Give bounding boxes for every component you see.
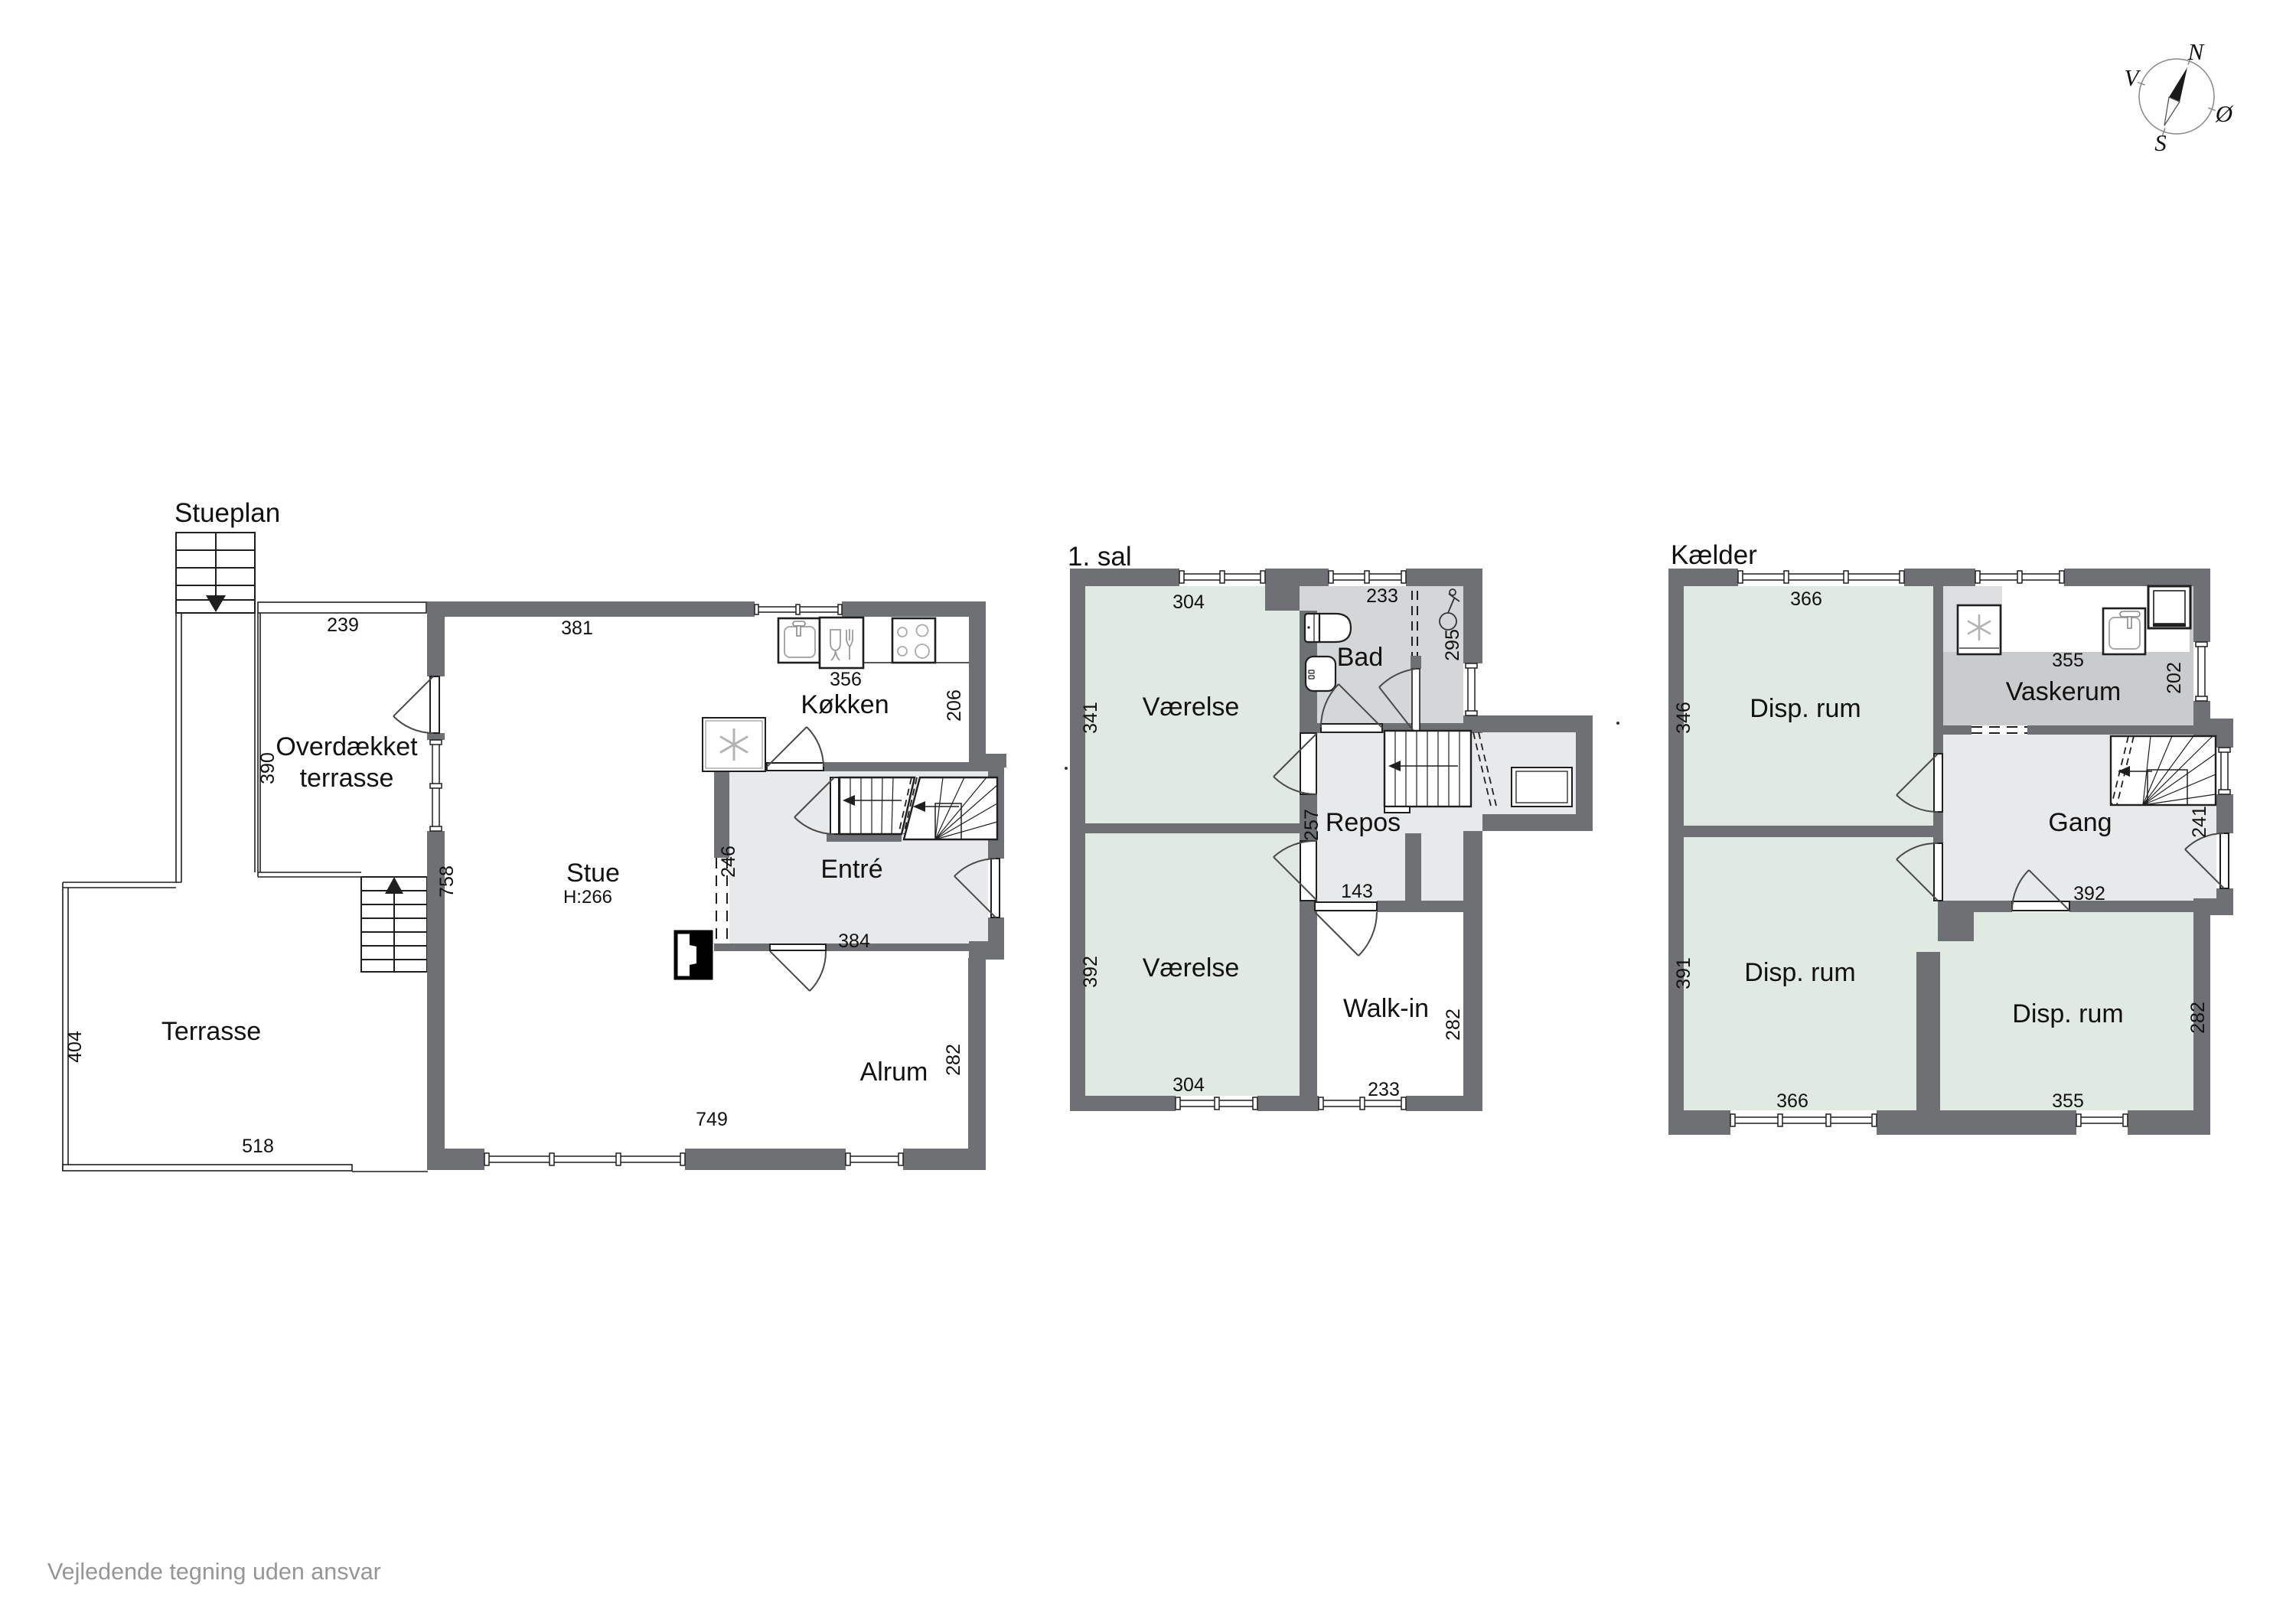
svg-text:Kælder: Kælder: [1671, 540, 1757, 570]
svg-text:518: 518: [242, 1136, 274, 1157]
svg-text:346: 346: [1673, 702, 1694, 734]
svg-text:233: 233: [1368, 1079, 1400, 1100]
svg-text:Walk-in: Walk-in: [1343, 994, 1429, 1023]
svg-text:Overdækket: Overdækket: [276, 732, 418, 761]
svg-text:Stue: Stue: [566, 859, 620, 888]
svg-text:Disp. rum: Disp. rum: [2012, 999, 2123, 1028]
svg-text:143: 143: [1341, 881, 1373, 902]
svg-text:304: 304: [1172, 1074, 1205, 1096]
svg-text:Disp. rum: Disp. rum: [1744, 958, 1855, 987]
svg-text:terrasse: terrasse: [300, 764, 394, 793]
svg-text:S: S: [2154, 129, 2167, 156]
svg-text:V: V: [2125, 64, 2141, 91]
svg-text:257: 257: [1301, 809, 1322, 841]
svg-text:391: 391: [1673, 957, 1694, 989]
svg-text:355: 355: [2052, 1090, 2084, 1112]
svg-text:Terrasse: Terrasse: [161, 1017, 261, 1046]
svg-text:381: 381: [561, 618, 593, 639]
svg-text:Køkken: Køkken: [801, 690, 889, 719]
svg-text:246: 246: [718, 846, 739, 878]
svg-text:384: 384: [838, 930, 870, 952]
svg-text:H:266: H:266: [563, 887, 612, 908]
svg-text:Disp. rum: Disp. rum: [1750, 694, 1861, 723]
svg-text:304: 304: [1172, 592, 1205, 613]
svg-text:282: 282: [2187, 1002, 2209, 1034]
svg-text:1. sal: 1. sal: [1068, 542, 1132, 572]
svg-text:749: 749: [696, 1109, 728, 1130]
svg-text:Vejledende tegning uden ansvar: Vejledende tegning uden ansvar: [47, 1559, 381, 1585]
svg-text:Repos: Repos: [1326, 808, 1401, 837]
svg-text:392: 392: [1080, 956, 1101, 988]
svg-text:392: 392: [2073, 883, 2105, 904]
svg-text:Værelse: Værelse: [1143, 693, 1240, 722]
svg-text:295: 295: [1442, 629, 1463, 661]
svg-text:366: 366: [1790, 588, 1822, 610]
svg-text:202: 202: [2164, 662, 2185, 694]
svg-text:Vaskerum: Vaskerum: [2006, 677, 2122, 706]
svg-text:356: 356: [830, 669, 862, 690]
svg-text:N: N: [2187, 38, 2206, 65]
svg-text:Stueplan: Stueplan: [174, 498, 280, 528]
svg-text:Ø: Ø: [2215, 100, 2234, 127]
svg-text:390: 390: [257, 752, 279, 784]
svg-text:206: 206: [944, 689, 965, 722]
svg-text:404: 404: [64, 1031, 86, 1063]
svg-text:282: 282: [1443, 1009, 1464, 1041]
svg-text:233: 233: [1366, 585, 1398, 607]
svg-text:355: 355: [2052, 650, 2084, 671]
svg-text:Entré: Entré: [820, 855, 882, 884]
svg-text:239: 239: [327, 614, 359, 636]
svg-text:Alrum: Alrum: [860, 1058, 928, 1087]
svg-text:Gang: Gang: [2048, 808, 2112, 837]
svg-text:282: 282: [943, 1044, 964, 1076]
svg-text:241: 241: [2189, 806, 2210, 838]
svg-text:Værelse: Værelse: [1143, 953, 1240, 983]
svg-text:341: 341: [1080, 702, 1101, 734]
svg-text:Bad: Bad: [1337, 643, 1384, 672]
svg-text:366: 366: [1776, 1090, 1808, 1112]
svg-text:758: 758: [436, 865, 458, 898]
